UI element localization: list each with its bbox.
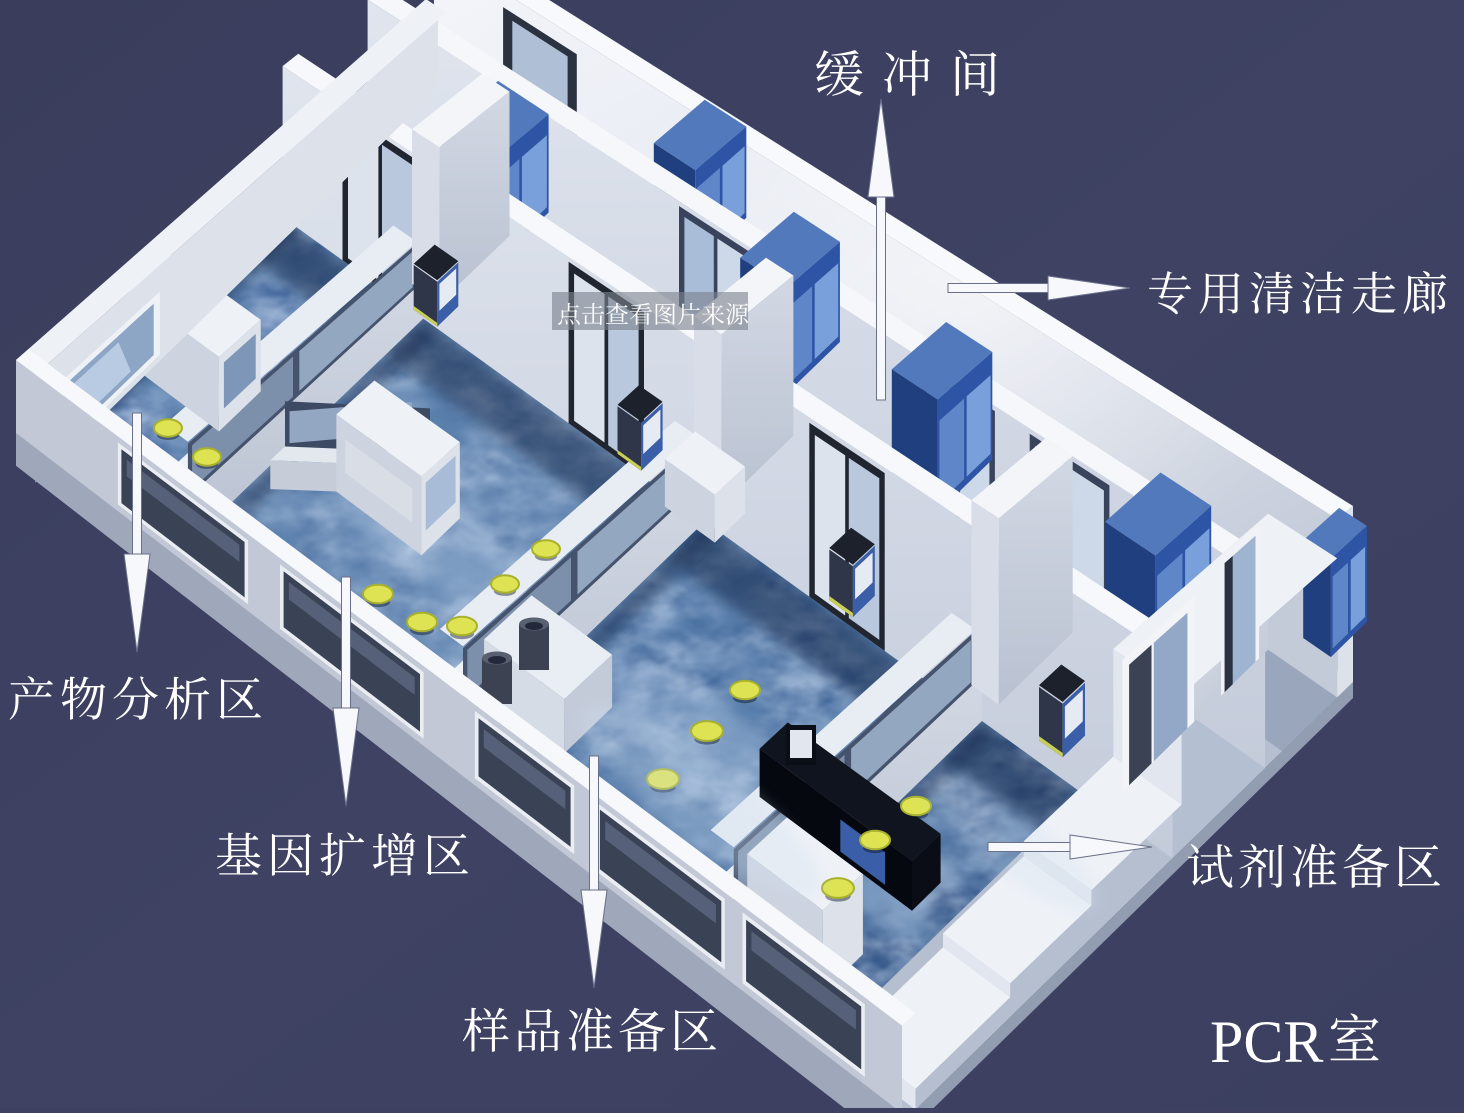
- svg-text:PCR: PCR: [1210, 1009, 1323, 1075]
